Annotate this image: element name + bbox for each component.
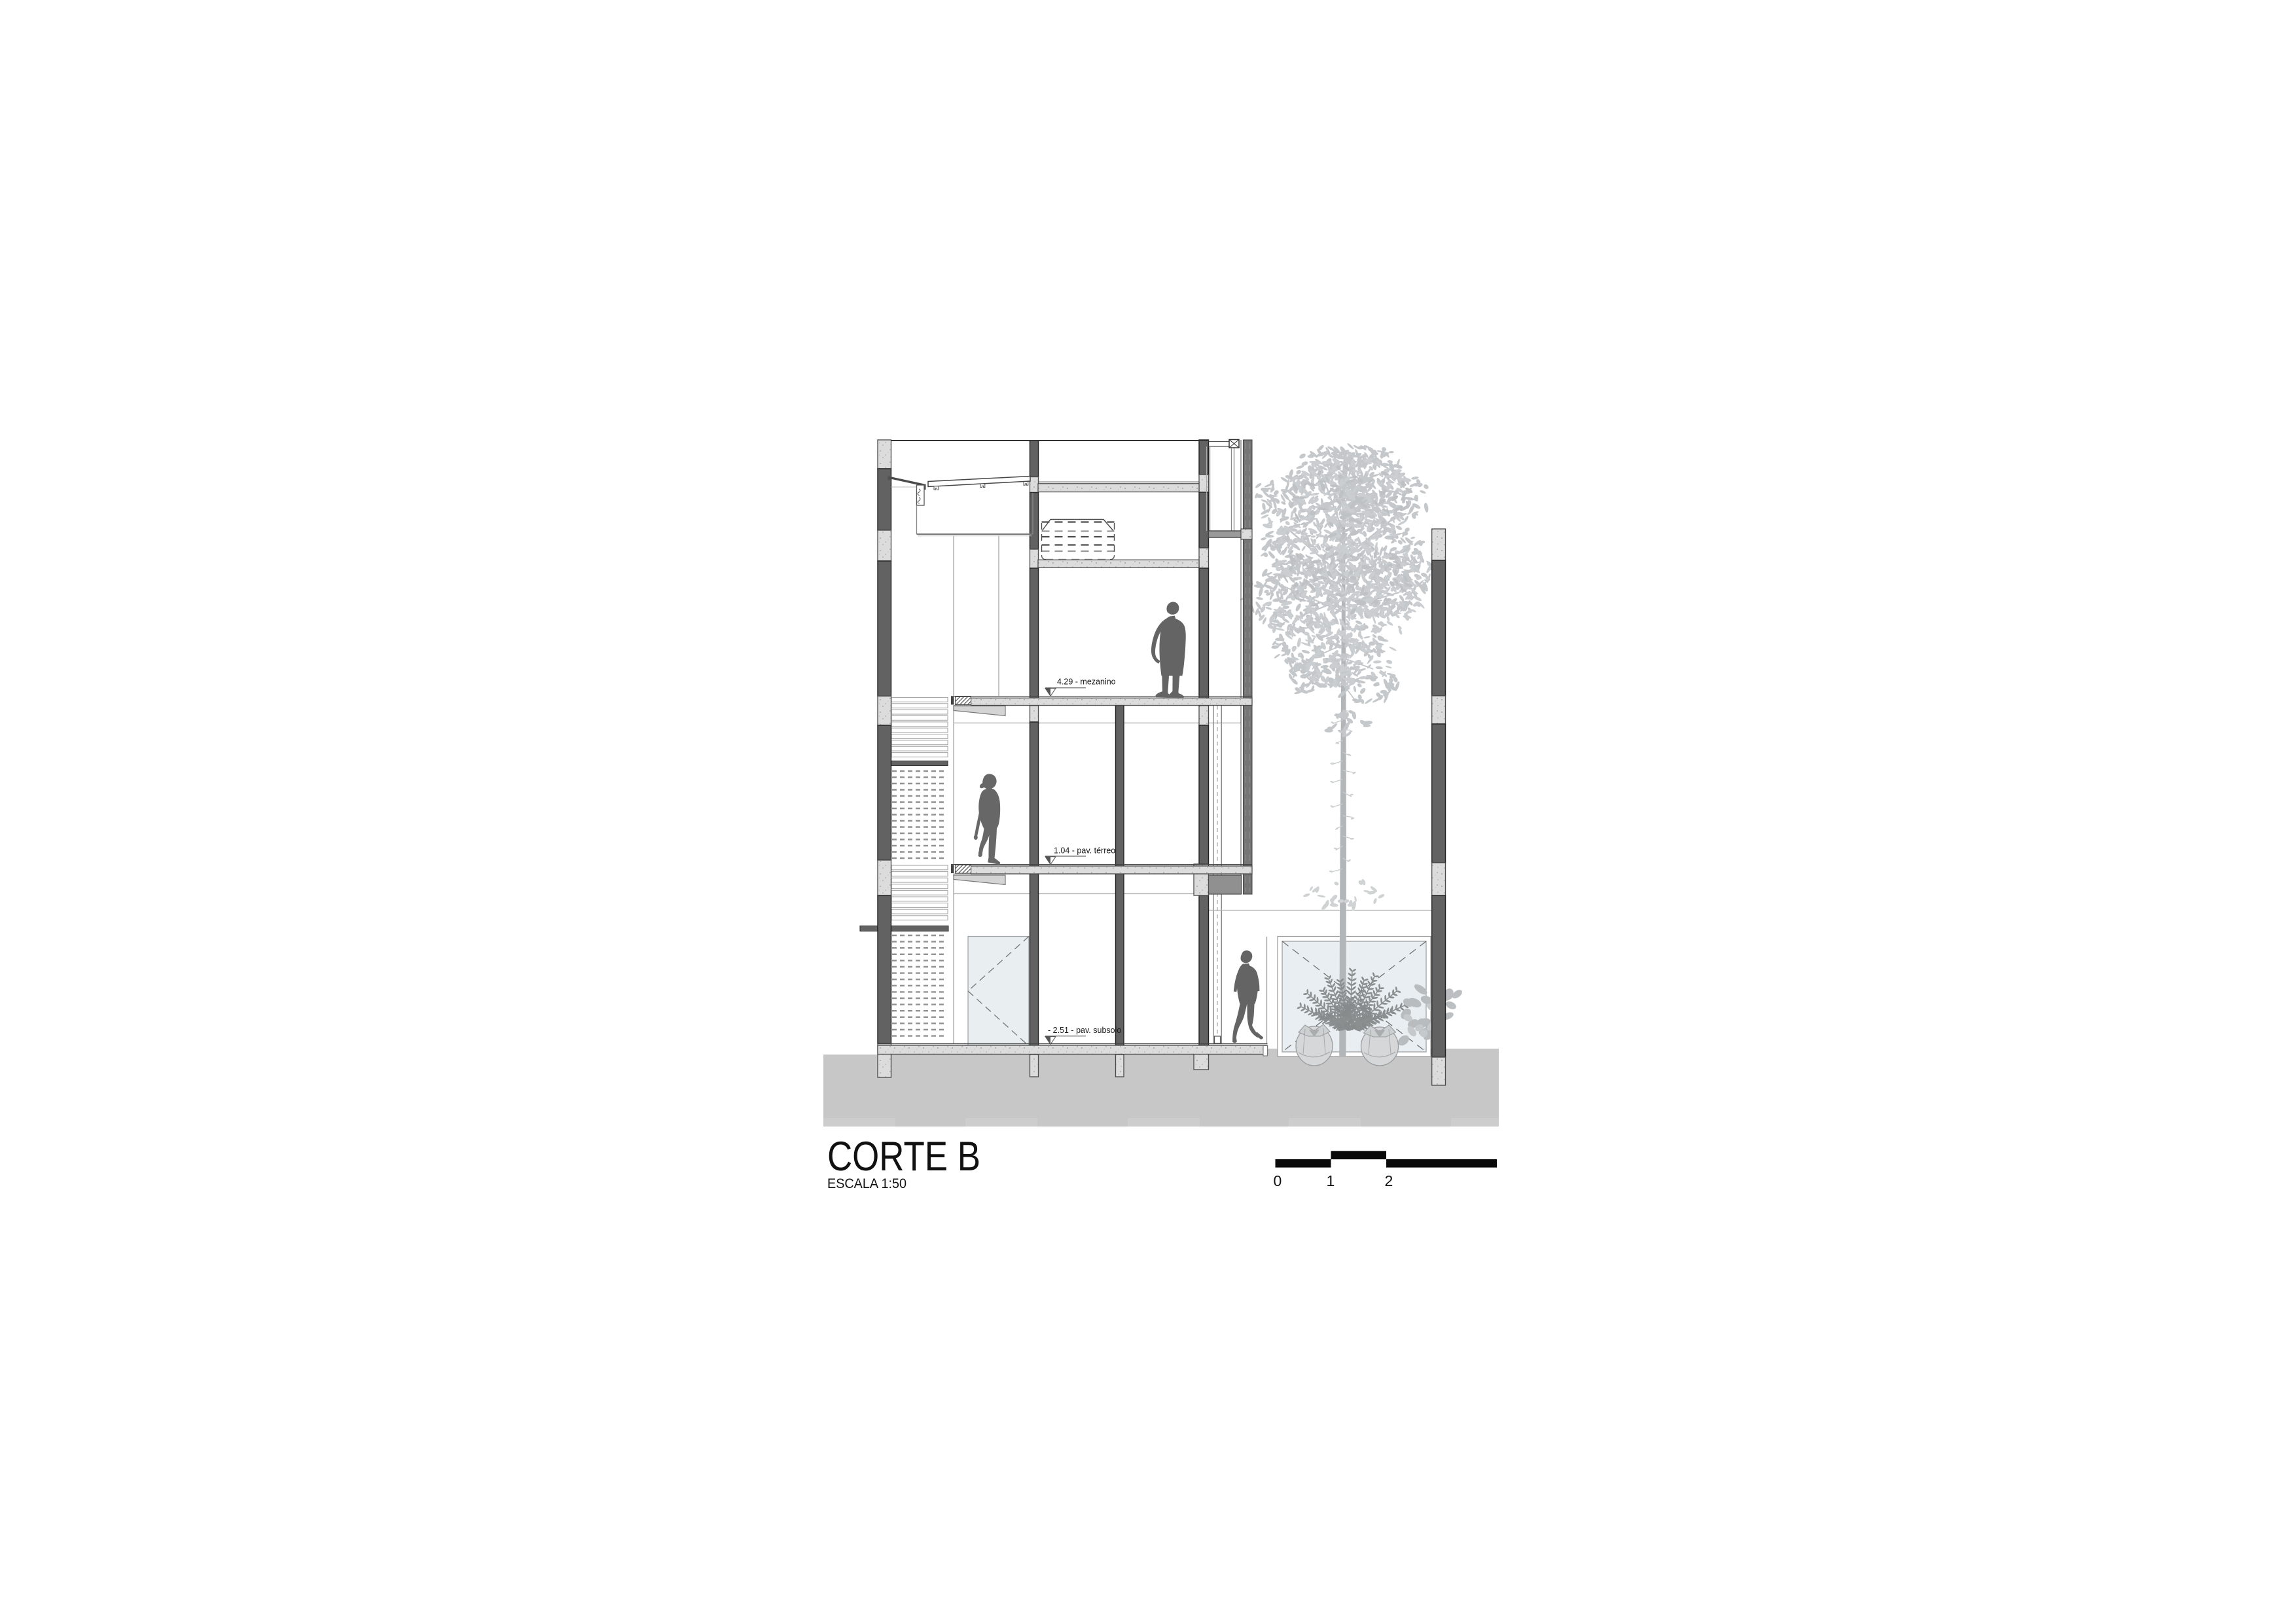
svg-text:1.04 - pav. térreo: 1.04 - pav. térreo [1054,846,1115,856]
svg-text:- 2.51 - pav. subsolo: - 2.51 - pav. subsolo [1048,1026,1121,1035]
svg-text:CORTE B: CORTE B [827,1134,980,1180]
svg-text:4.29 - mezanino: 4.29 - mezanino [1057,677,1116,687]
svg-text:0: 0 [1274,1172,1282,1189]
svg-text:ESCALA 1:50: ESCALA 1:50 [827,1176,906,1191]
svg-text:1: 1 [1327,1172,1335,1189]
svg-text:2: 2 [1385,1172,1393,1189]
